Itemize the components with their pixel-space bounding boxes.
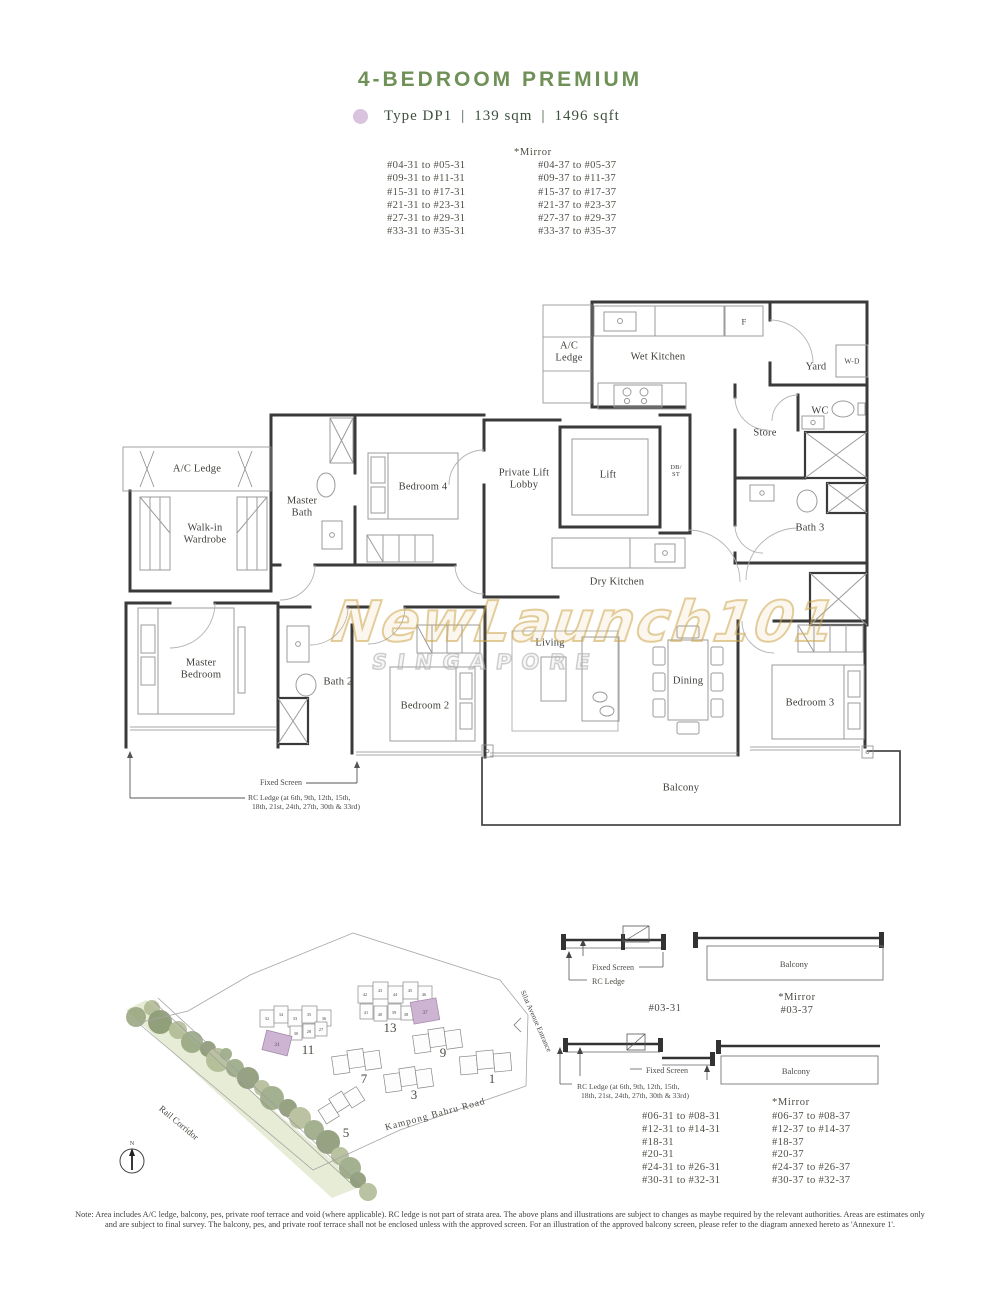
room-label-bath3: Bath 3 bbox=[796, 522, 825, 534]
unit-range: #06-31 to #08-31 bbox=[642, 1111, 720, 1124]
room-label-ac-ledge-top: A/C Ledge bbox=[549, 341, 589, 364]
room-label-bedroom4: Bedroom 4 bbox=[399, 481, 448, 493]
unit-type: Type DP1 bbox=[384, 108, 452, 124]
area-sqm: 139 sqm bbox=[474, 108, 532, 124]
floor-plan-page: 4-BEDROOM PREMIUM Type DP1|139 sqm|1496 … bbox=[0, 0, 1000, 1294]
room-label-washer-dryer: W-D bbox=[844, 355, 859, 367]
road-label: Kampong Bahru Road bbox=[384, 1097, 487, 1133]
floor-plan: A/C Ledge Wet Kitchen F Yard W-D WC Stor… bbox=[110, 285, 910, 845]
room-label-lift: Lift bbox=[600, 469, 617, 481]
detail2-balcony-label: Balcony bbox=[782, 1066, 811, 1076]
unit-range: #27-37 to #29-37 bbox=[538, 212, 616, 225]
unit-range: #20-37 bbox=[772, 1149, 850, 1162]
watermark-logo: NewLaunch101 bbox=[328, 590, 757, 655]
block-number-1: 1 bbox=[489, 1071, 496, 1086]
room-label-master-bath: Master Bath bbox=[278, 496, 326, 519]
top-units-right: #04-37 to #05-37 #09-37 to #11-37 #15-37… bbox=[538, 159, 616, 239]
leader-lines bbox=[127, 751, 360, 798]
room-label-bedroom2: Bedroom 2 bbox=[401, 700, 450, 712]
room-label-bath2: Bath 2 bbox=[324, 676, 353, 688]
detail1-mirror-header: *Mirror bbox=[778, 992, 815, 1003]
room-label-wet-kitchen: Wet Kitchen bbox=[631, 351, 686, 363]
balcony-detail-1: Fixed Screen RC Ledge Balcony #03-31 *Mi… bbox=[535, 922, 895, 1017]
top-units-left: #04-31 to #05-31 #09-31 to #11-31 #15-31… bbox=[387, 159, 465, 239]
separator: | bbox=[461, 108, 465, 124]
detail1-balcony-label: Balcony bbox=[780, 959, 809, 969]
unit-range: #30-37 to #32-37 bbox=[772, 1175, 850, 1188]
watermark-subtitle: SINGAPORE bbox=[370, 650, 601, 674]
bottom-units-right: #06-37 to #08-37 #12-37 to #14-37 #18-37… bbox=[772, 1111, 850, 1188]
room-label-fridge: F bbox=[742, 316, 747, 328]
unit-range: #18-37 bbox=[772, 1137, 850, 1150]
room-label-yard: Yard bbox=[806, 361, 827, 373]
highlighted-stack-37-label: 37 bbox=[422, 1010, 428, 1016]
page-title: 4-BEDROOM PREMIUM bbox=[0, 68, 1000, 92]
unit-type-row: Type DP1|139 sqm|1496 sqft bbox=[353, 108, 620, 125]
note-line-1: Note: Area includes A/C ledge, balcony, … bbox=[55, 1210, 945, 1220]
note-line-2: and are subject to final survey. The bal… bbox=[55, 1220, 945, 1230]
unit-range: #12-37 to #14-37 bbox=[772, 1124, 850, 1137]
room-label-walk-in: Walk-in Wardrobe bbox=[173, 523, 237, 546]
detail1-mirror-unit: #03-37 bbox=[781, 1005, 814, 1016]
unit-range: #09-37 to #11-37 bbox=[538, 172, 616, 185]
entrance-mark bbox=[514, 1018, 521, 1032]
unit-range: #21-31 to #23-31 bbox=[387, 199, 465, 212]
bath2-toilet bbox=[296, 674, 316, 696]
room-label-master-bedroom: Master Bedroom bbox=[168, 658, 234, 681]
unit-range: #18-31 bbox=[642, 1137, 720, 1150]
unit-range: #06-37 to #08-37 bbox=[772, 1111, 850, 1124]
unit-range: #15-37 to #17-37 bbox=[538, 186, 616, 199]
walls bbox=[126, 302, 900, 825]
north-label: N bbox=[130, 1140, 135, 1147]
room-label-lift-lobby: Private Lift Lobby bbox=[496, 468, 552, 491]
unit-range: #33-37 to #35-37 bbox=[538, 225, 616, 238]
room-label-wc: WC bbox=[811, 405, 828, 417]
rc-ledge-annotation-1: RC Ledge (at 6th, 9th, 12th, 15th, bbox=[248, 793, 351, 802]
unit-range: #12-31 to #14-31 bbox=[642, 1124, 720, 1137]
furniture bbox=[138, 306, 868, 744]
block-number-9: 9 bbox=[440, 1045, 447, 1060]
unit-range: #24-37 to #26-37 bbox=[772, 1162, 850, 1175]
floor-plan-linework bbox=[110, 285, 910, 845]
stack-number: 32 bbox=[265, 1016, 269, 1021]
unit-type-legend-dot bbox=[353, 109, 368, 124]
rc-ledge-annotation-2: 18th, 21st, 24th, 27th, 30th & 33rd) bbox=[252, 802, 360, 811]
site-map: 32 34 33 35 36 30 28 27 42 43 44 45 46 4… bbox=[100, 918, 560, 1208]
unit-range: #21-37 to #23-37 bbox=[538, 199, 616, 212]
separator: | bbox=[541, 108, 545, 124]
room-label-store: Store bbox=[753, 427, 776, 439]
room-label-dining: Dining bbox=[673, 675, 703, 687]
unit-range: #30-31 to #32-31 bbox=[642, 1175, 720, 1188]
unit-range: #20-31 bbox=[642, 1149, 720, 1162]
detail2-fixed-screen-label: Fixed Screen bbox=[646, 1066, 688, 1075]
unit-range: #33-31 to #35-31 bbox=[387, 225, 465, 238]
block-number-5: 5 bbox=[343, 1125, 350, 1140]
room-label-db-st: DB/ ST bbox=[666, 464, 686, 478]
stack-number: 41 bbox=[364, 1010, 368, 1015]
bottom-mirror-header: *Mirror bbox=[772, 1097, 810, 1108]
area-sqft: 1496 sqft bbox=[555, 108, 620, 124]
room-label-ac-ledge-left: A/C Ledge bbox=[173, 463, 221, 475]
unit-range: #15-31 to #17-31 bbox=[387, 186, 465, 199]
wc-toilet bbox=[832, 401, 854, 417]
block-number-7: 7 bbox=[361, 1071, 368, 1086]
room-label-dry-kitchen: Dry Kitchen bbox=[590, 576, 644, 588]
unit-range: #04-31 to #05-31 bbox=[387, 159, 465, 172]
disclaimer-note: Note: Area includes A/C ledge, balcony, … bbox=[55, 1210, 945, 1231]
fixed-screen-annotation: Fixed Screen bbox=[260, 778, 302, 787]
detail2-rc-ledge-1: RC Ledge (at 6th, 9th, 12th, 15th, bbox=[577, 1082, 680, 1091]
detail2-linework bbox=[557, 1034, 880, 1084]
detail2-rc-ledge-2: 18th, 21st, 24th, 27th, 30th & 33rd) bbox=[581, 1091, 689, 1100]
highlighted-stack-31-label: 31 bbox=[274, 1042, 280, 1048]
detail1-rc-ledge-label: RC Ledge bbox=[592, 977, 625, 986]
top-mirror-header: *Mirror bbox=[514, 147, 552, 158]
unit-range: #09-31 to #11-31 bbox=[387, 172, 465, 185]
block-number-13: 13 bbox=[384, 1020, 397, 1035]
unit-range: #24-31 to #26-31 bbox=[642, 1162, 720, 1175]
stove bbox=[614, 385, 662, 407]
unit-range: #04-37 to #05-37 bbox=[538, 159, 616, 172]
rail-corridor-label: Rail Corridor bbox=[157, 1103, 200, 1142]
balcony-detail-2: Fixed Screen RC Ledge (at 6th, 9th, 12th… bbox=[530, 1032, 895, 1112]
block-number-11: 11 bbox=[302, 1042, 315, 1057]
room-label-balcony: Balcony bbox=[663, 782, 699, 794]
bottom-units-left: #06-31 to #08-31 #12-31 to #14-31 #18-31… bbox=[642, 1111, 720, 1188]
stack-number: 42 bbox=[363, 992, 367, 997]
master-bath-toilet bbox=[317, 473, 335, 497]
room-label-bedroom3: Bedroom 3 bbox=[786, 697, 835, 709]
unit-range: #27-31 to #29-31 bbox=[387, 212, 465, 225]
north-arrow: N bbox=[120, 1140, 144, 1173]
block-number-3: 3 bbox=[411, 1087, 418, 1102]
detail1-unit: #03-31 bbox=[649, 1003, 682, 1014]
detail1-fixed-screen-label: Fixed Screen bbox=[592, 963, 634, 972]
bath3-toilet bbox=[797, 490, 817, 512]
unit-type-label: Type DP1|139 sqm|1496 sqft bbox=[384, 108, 620, 125]
